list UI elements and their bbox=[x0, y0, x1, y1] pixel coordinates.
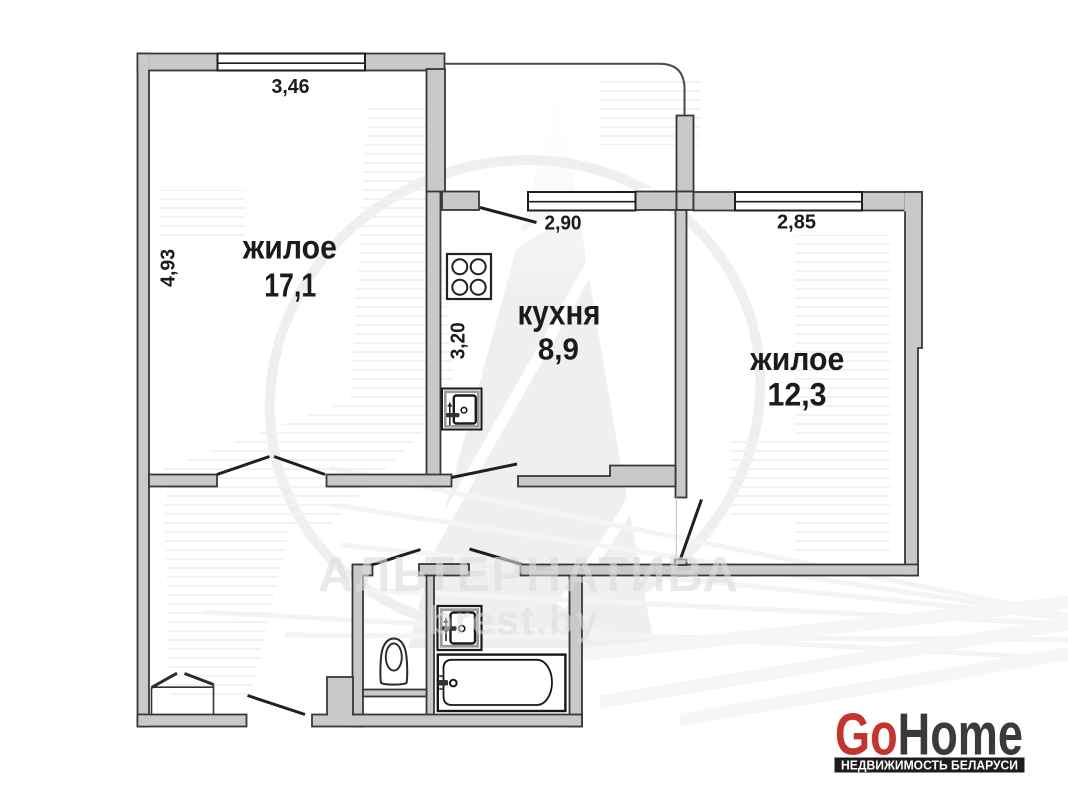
svg-text:НЕДВИЖИМОСТЬ БЕЛАРУСИ: НЕДВИЖИМОСТЬ БЕЛАРУСИ bbox=[841, 759, 1018, 773]
svg-text:3,46: 3,46 bbox=[272, 76, 310, 98]
svg-text:2,90: 2,90 bbox=[545, 212, 582, 234]
svg-text:8,9: 8,9 bbox=[538, 332, 579, 367]
svg-text:3,20: 3,20 bbox=[448, 322, 470, 359]
svg-text:17,1: 17,1 bbox=[264, 267, 316, 304]
svg-text:brest.by: brest.by bbox=[428, 599, 600, 643]
svg-text:2,85: 2,85 bbox=[777, 212, 816, 234]
svg-text:12,3: 12,3 bbox=[768, 377, 827, 413]
svg-text:кухня: кухня bbox=[518, 294, 601, 333]
svg-text:4,93: 4,93 bbox=[158, 249, 180, 287]
svg-text:жилое: жилое bbox=[749, 341, 844, 377]
svg-text:АЛЬТЕРНАТИВА: АЛЬТЕРНАТИВА bbox=[318, 548, 740, 602]
svg-text:жилое: жилое bbox=[242, 228, 337, 265]
